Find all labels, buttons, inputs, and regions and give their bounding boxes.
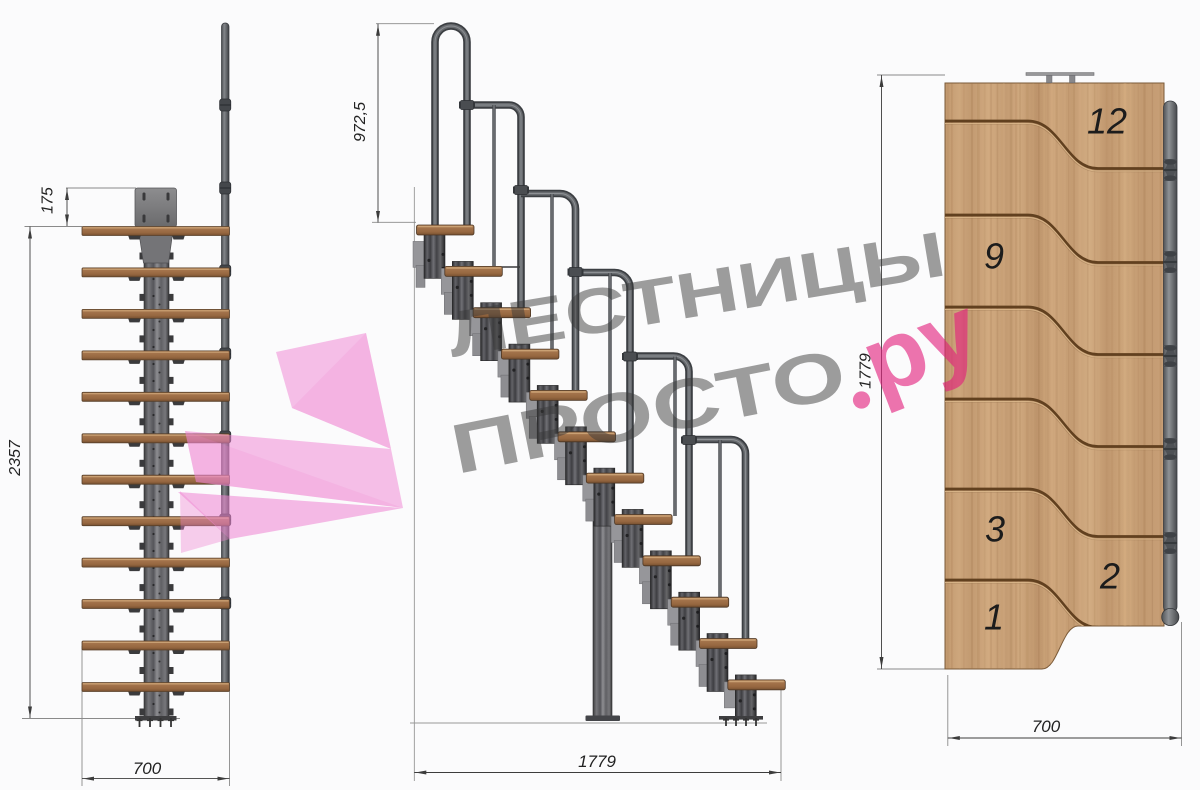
svg-text:175: 175 xyxy=(40,187,57,214)
svg-text:9: 9 xyxy=(984,236,1004,277)
svg-text:1: 1 xyxy=(984,597,1004,638)
svg-text:972,5: 972,5 xyxy=(352,102,369,142)
svg-text:3: 3 xyxy=(985,509,1005,550)
svg-text:2: 2 xyxy=(1099,556,1120,597)
svg-text:1779: 1779 xyxy=(578,752,616,771)
svg-text:12: 12 xyxy=(1087,101,1127,142)
svg-text:700: 700 xyxy=(1032,717,1061,736)
svg-text:700: 700 xyxy=(133,759,162,778)
svg-text:2357: 2357 xyxy=(7,439,24,477)
